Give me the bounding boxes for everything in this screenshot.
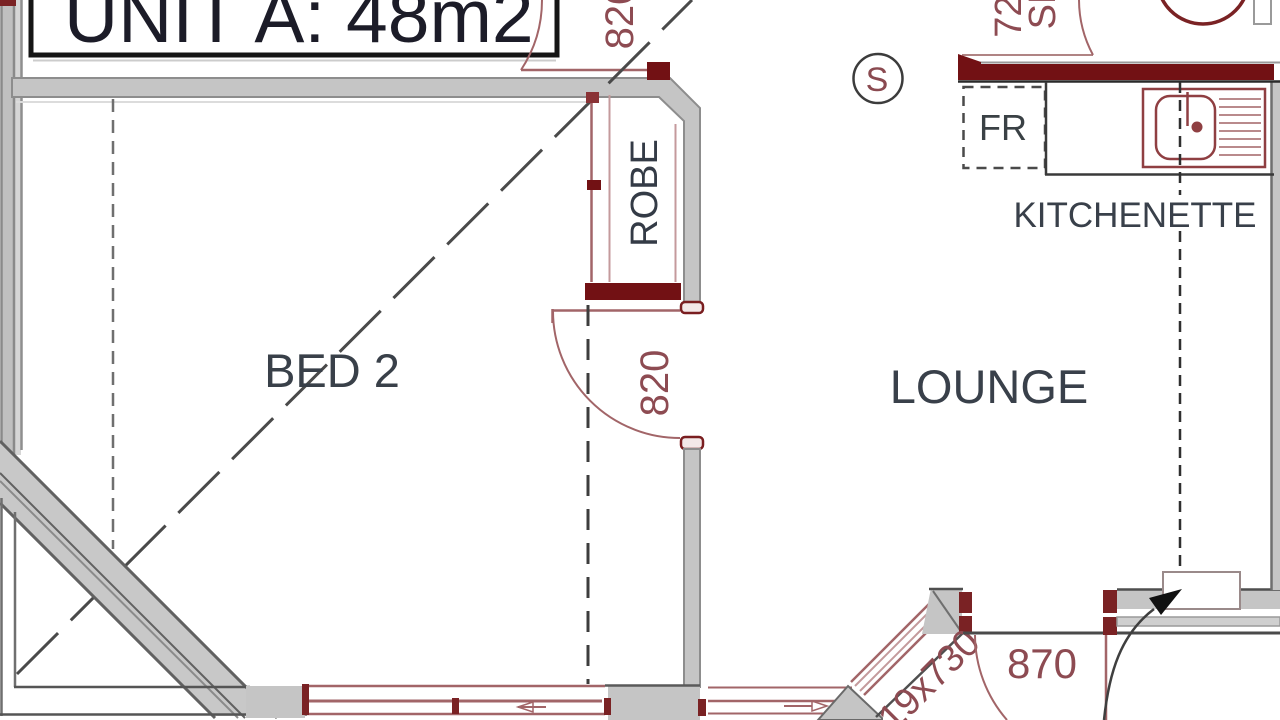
svg-text:820: 820 [598,0,642,49]
svg-text:ROBE: ROBE [624,139,666,247]
svg-text:FR: FR [979,107,1027,148]
svg-text:870: 870 [1007,640,1077,687]
svg-text:S: S [866,61,889,99]
svg-text:KITCHENETTE: KITCHENETTE [1013,196,1256,235]
svg-text:UNIT A: 48m2: UNIT A: 48m2 [64,0,534,58]
svg-text:BED 2: BED 2 [264,344,400,397]
svg-text:820: 820 [633,350,677,417]
svg-text:LOUNGE: LOUNGE [890,360,1089,413]
svg-text:SD: SD [1022,0,1064,29]
